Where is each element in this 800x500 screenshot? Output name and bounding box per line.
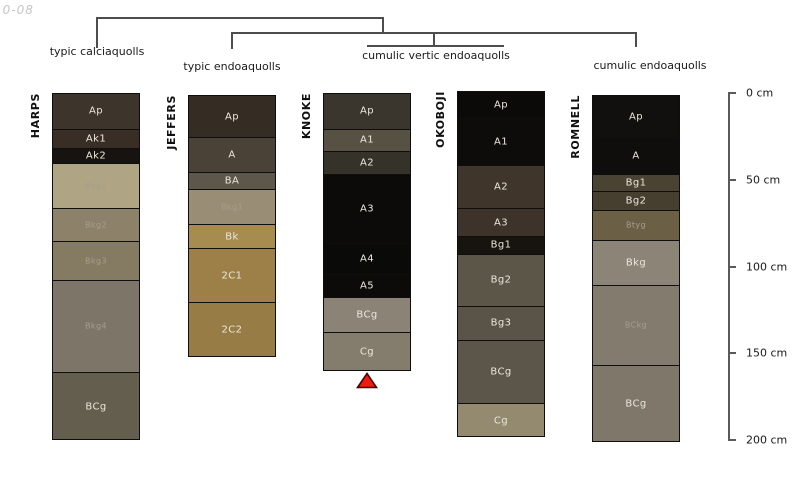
horizon-label: Bg2 <box>593 195 679 206</box>
depth-tick <box>729 352 736 354</box>
horizon-romnell-bckg: BCkg <box>593 285 679 365</box>
horizon-label: Btyg <box>593 221 679 230</box>
horizon-label: BCkg <box>593 321 679 330</box>
horizon-label: Bg1 <box>593 177 679 188</box>
dendrogram-root-line <box>97 17 384 19</box>
horizon-label: Bg2 <box>458 274 544 285</box>
horizon-romnell-a: A <box>593 137 679 173</box>
depth-tick <box>729 179 736 181</box>
horizon-label: A <box>593 150 679 161</box>
horizon-harps-bkg2: Bkg2 <box>53 208 139 241</box>
horizon-label: Bkg4 <box>53 321 139 330</box>
horizon-label: Bkg2 <box>53 221 139 230</box>
group-label-cumulic-vertic-endoaquolls: cumulic vertic endoaquolls <box>362 49 510 62</box>
soil-column-okoboji: ApA1A2A3Bg1Bg2Bg3BCgCg <box>457 91 545 436</box>
horizon-jeffers-bk: Bk <box>189 224 275 248</box>
horizon-knoke-a4: A4 <box>324 243 410 274</box>
horizon-label: 2C1 <box>189 270 275 281</box>
horizon-okoboji-bg3: Bg3 <box>458 306 544 341</box>
horizon-label: A1 <box>324 135 410 146</box>
horizon-harps-ak1: Ak1 <box>53 129 139 148</box>
horizon-label: A2 <box>458 182 544 193</box>
horizon-label: Bkg3 <box>53 256 139 265</box>
depth-tick-label: 150 cm <box>746 347 787 360</box>
horizon-label: Bg3 <box>458 318 544 329</box>
horizon-okoboji-a1: A1 <box>458 118 544 165</box>
horizon-jeffers-ap: Ap <box>189 96 275 138</box>
corner-watermark-text: 10-08 <box>0 3 34 17</box>
dendrogram-level3-line <box>367 45 504 47</box>
horizon-label: Cg <box>458 415 544 426</box>
horizon-label: BA <box>189 175 275 186</box>
horizon-label: Ak2 <box>53 150 139 161</box>
dendrogram-branch-romnell <box>635 32 637 47</box>
horizon-label: Bkg1 <box>189 203 275 212</box>
depth-tick-label: 0 cm <box>746 87 773 100</box>
group-label-typic-calciaquolls: typic calciaquolls <box>50 45 145 58</box>
horizon-label: BCg <box>324 309 410 320</box>
soil-profile-figure: 10-08 typic calciaquolls typic endoaquol… <box>0 0 800 500</box>
horizon-romnell-bkg: Bkg <box>593 240 679 285</box>
depth-tick-label: 50 cm <box>746 173 780 186</box>
depth-tick <box>729 92 736 94</box>
horizon-jeffers-bkg1: Bkg1 <box>189 189 275 224</box>
dendrogram-branch-jeffers <box>231 32 233 49</box>
red-triangle-marker-icon <box>356 372 378 389</box>
soil-column-jeffers: ApABABkg1Bk2C12C2 <box>188 95 276 357</box>
horizon-jeffers-2c2: 2C2 <box>189 302 275 357</box>
horizon-label: Bkg1 <box>53 182 139 191</box>
horizon-label: A3 <box>324 203 410 214</box>
group-label-cumulic-endoaquolls: cumulic endoaquolls <box>593 59 706 72</box>
horizon-label: BCg <box>53 401 139 412</box>
group-label-typic-endoaquolls: typic endoaquolls <box>183 60 280 73</box>
horizon-knoke-bcg: BCg <box>324 297 410 332</box>
horizon-label: Bg1 <box>458 240 544 251</box>
horizon-knoke-ap: Ap <box>324 94 410 129</box>
horizon-harps-bkg4: Bkg4 <box>53 280 139 372</box>
horizon-label: BCg <box>593 398 679 409</box>
soil-column-harps: ApAk1Ak2Bkg1Bkg2Bkg3Bkg4BCg <box>52 93 140 440</box>
horizon-okoboji-ap: Ap <box>458 92 544 118</box>
horizon-knoke-a3: A3 <box>324 174 410 243</box>
horizon-okoboji-bcg: BCg <box>458 340 544 402</box>
depth-tick-label: 200 cm <box>746 434 787 447</box>
horizon-okoboji-a2: A2 <box>458 165 544 208</box>
horizon-harps-bkg3: Bkg3 <box>53 241 139 279</box>
horizon-okoboji-cg: Cg <box>458 403 544 437</box>
horizon-knoke-cg: Cg <box>324 332 410 371</box>
horizon-okoboji-a3: A3 <box>458 208 544 236</box>
horizon-label: Bk <box>189 231 275 242</box>
horizon-label: A3 <box>458 217 544 228</box>
column-name-okoboji: OKOBOJI <box>434 91 449 171</box>
horizon-label: Ap <box>53 106 139 117</box>
horizon-harps-bcg: BCg <box>53 372 139 440</box>
horizon-label: A5 <box>324 280 410 291</box>
depth-tick <box>729 266 736 268</box>
soil-column-romnell: ApABg1Bg2BtygBkgBCkgBCg <box>592 95 680 442</box>
horizon-label: A4 <box>324 254 410 265</box>
horizon-romnell-ap: Ap <box>593 96 679 138</box>
column-name-harps: HARPS <box>29 93 44 173</box>
horizon-jeffers-a: A <box>189 137 275 172</box>
horizon-label: Ap <box>189 111 275 122</box>
column-name-knoke: KNOKE <box>300 93 315 173</box>
horizon-knoke-a2: A2 <box>324 151 410 174</box>
horizon-label: A1 <box>458 136 544 147</box>
horizon-harps-ak2: Ak2 <box>53 148 139 164</box>
horizon-jeffers-ba: BA <box>189 172 275 189</box>
horizon-label: A <box>189 149 275 160</box>
horizon-romnell-bcg: BCg <box>593 365 679 442</box>
horizon-label: 2C2 <box>189 325 275 336</box>
horizon-romnell-btyg: Btyg <box>593 210 679 239</box>
horizon-label: Ap <box>458 100 544 111</box>
horizon-label: Bkg <box>593 257 679 268</box>
horizon-label: Ap <box>324 106 410 117</box>
horizon-romnell-bg1: Bg1 <box>593 174 679 191</box>
horizon-label: Ak1 <box>53 133 139 144</box>
horizon-knoke-a5: A5 <box>324 274 410 297</box>
column-name-jeffers: JEFFERS <box>165 95 180 175</box>
horizon-label: Cg <box>324 346 410 357</box>
column-name-romnell: ROMNELL <box>569 95 584 175</box>
horizon-romnell-bg2: Bg2 <box>593 191 679 210</box>
horizon-okoboji-bg2: Bg2 <box>458 254 544 306</box>
horizon-jeffers-2c1: 2C1 <box>189 248 275 302</box>
soil-column-knoke: ApA1A2A3A4A5BCgCg <box>323 93 411 371</box>
dendrogram-branch-harps <box>96 17 98 48</box>
depth-tick-label: 100 cm <box>746 260 787 273</box>
horizon-harps-ap: Ap <box>53 94 139 129</box>
horizon-label: A2 <box>324 157 410 168</box>
horizon-label: BCg <box>458 366 544 377</box>
horizon-harps-bkg1: Bkg1 <box>53 163 139 208</box>
depth-tick <box>729 439 736 441</box>
horizon-okoboji-bg1: Bg1 <box>458 236 544 253</box>
horizon-knoke-a1: A1 <box>324 129 410 152</box>
horizon-label: Ap <box>593 111 679 122</box>
